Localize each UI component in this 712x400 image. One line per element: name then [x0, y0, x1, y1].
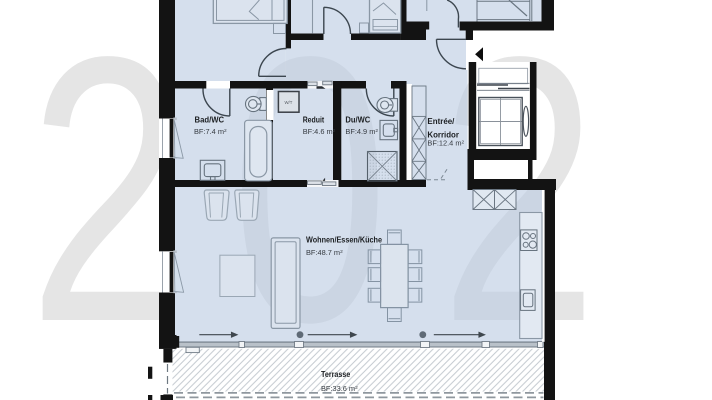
svg-text:W/T: W/T	[285, 100, 293, 105]
svg-text:Entrée/: Entrée/	[427, 116, 455, 126]
svg-text:Reduit: Reduit	[303, 115, 325, 125]
svg-text:BF:33.6 m2: BF:33.6 m2	[321, 384, 358, 393]
svg-text:BF:7.4 m2: BF:7.4 m2	[194, 127, 227, 136]
svg-text:BF:4.6 m2: BF:4.6 m2	[303, 127, 336, 136]
svg-text:BF:48.7 m2: BF:48.7 m2	[306, 248, 343, 257]
svg-text:BF:12.4 m2: BF:12.4 m2	[427, 139, 464, 148]
svg-text:BF:4.9 m2: BF:4.9 m2	[345, 127, 378, 136]
svg-text:Du/WC: Du/WC	[345, 115, 370, 125]
svg-text:Bad/WC: Bad/WC	[195, 115, 225, 125]
svg-text:Wohnen/Essen/Küche: Wohnen/Essen/Küche	[306, 235, 382, 245]
svg-text:Terrasse: Terrasse	[321, 369, 351, 379]
